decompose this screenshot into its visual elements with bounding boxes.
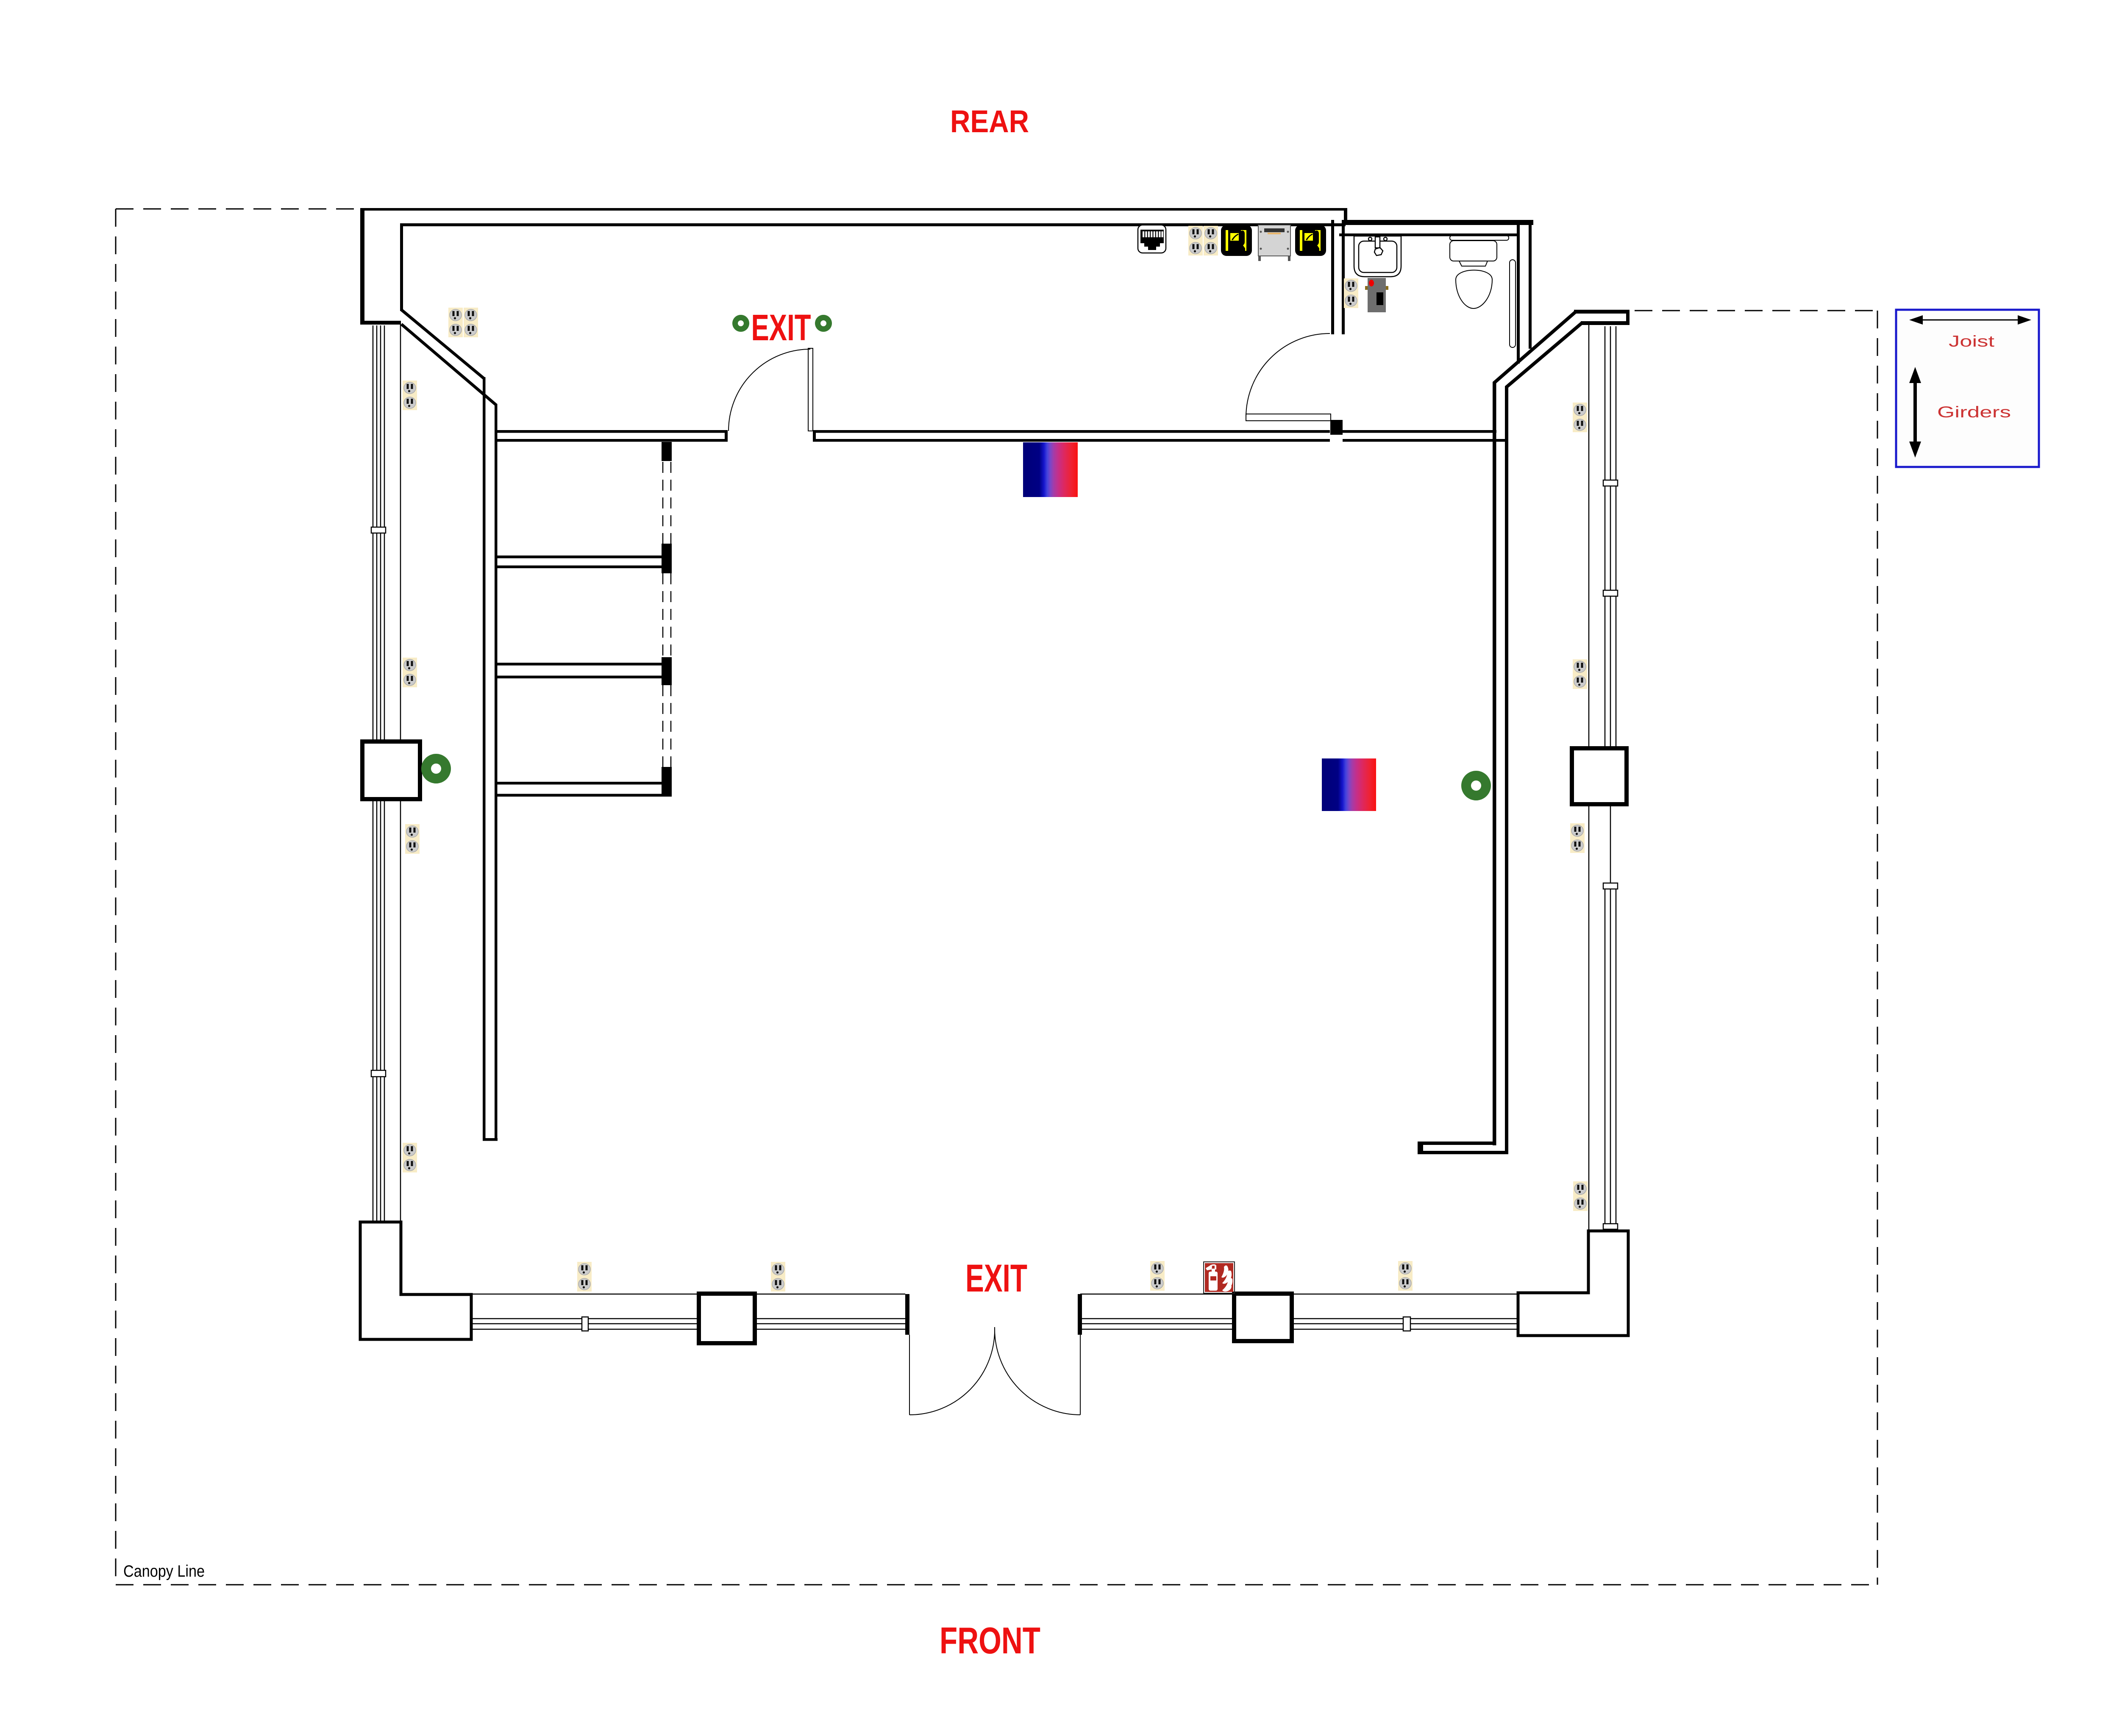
svg-text:EXIT: EXIT bbox=[751, 307, 811, 348]
svg-text:FRONT: FRONT bbox=[940, 1619, 1040, 1661]
svg-text:REAR: REAR bbox=[950, 104, 1029, 139]
svg-text:EXIT: EXIT bbox=[965, 1257, 1027, 1300]
svg-text:Canopy Line: Canopy Line bbox=[123, 1562, 205, 1580]
svg-text:Girders: Girders bbox=[1937, 403, 2011, 421]
svg-text:Joist: Joist bbox=[1949, 333, 1995, 350]
